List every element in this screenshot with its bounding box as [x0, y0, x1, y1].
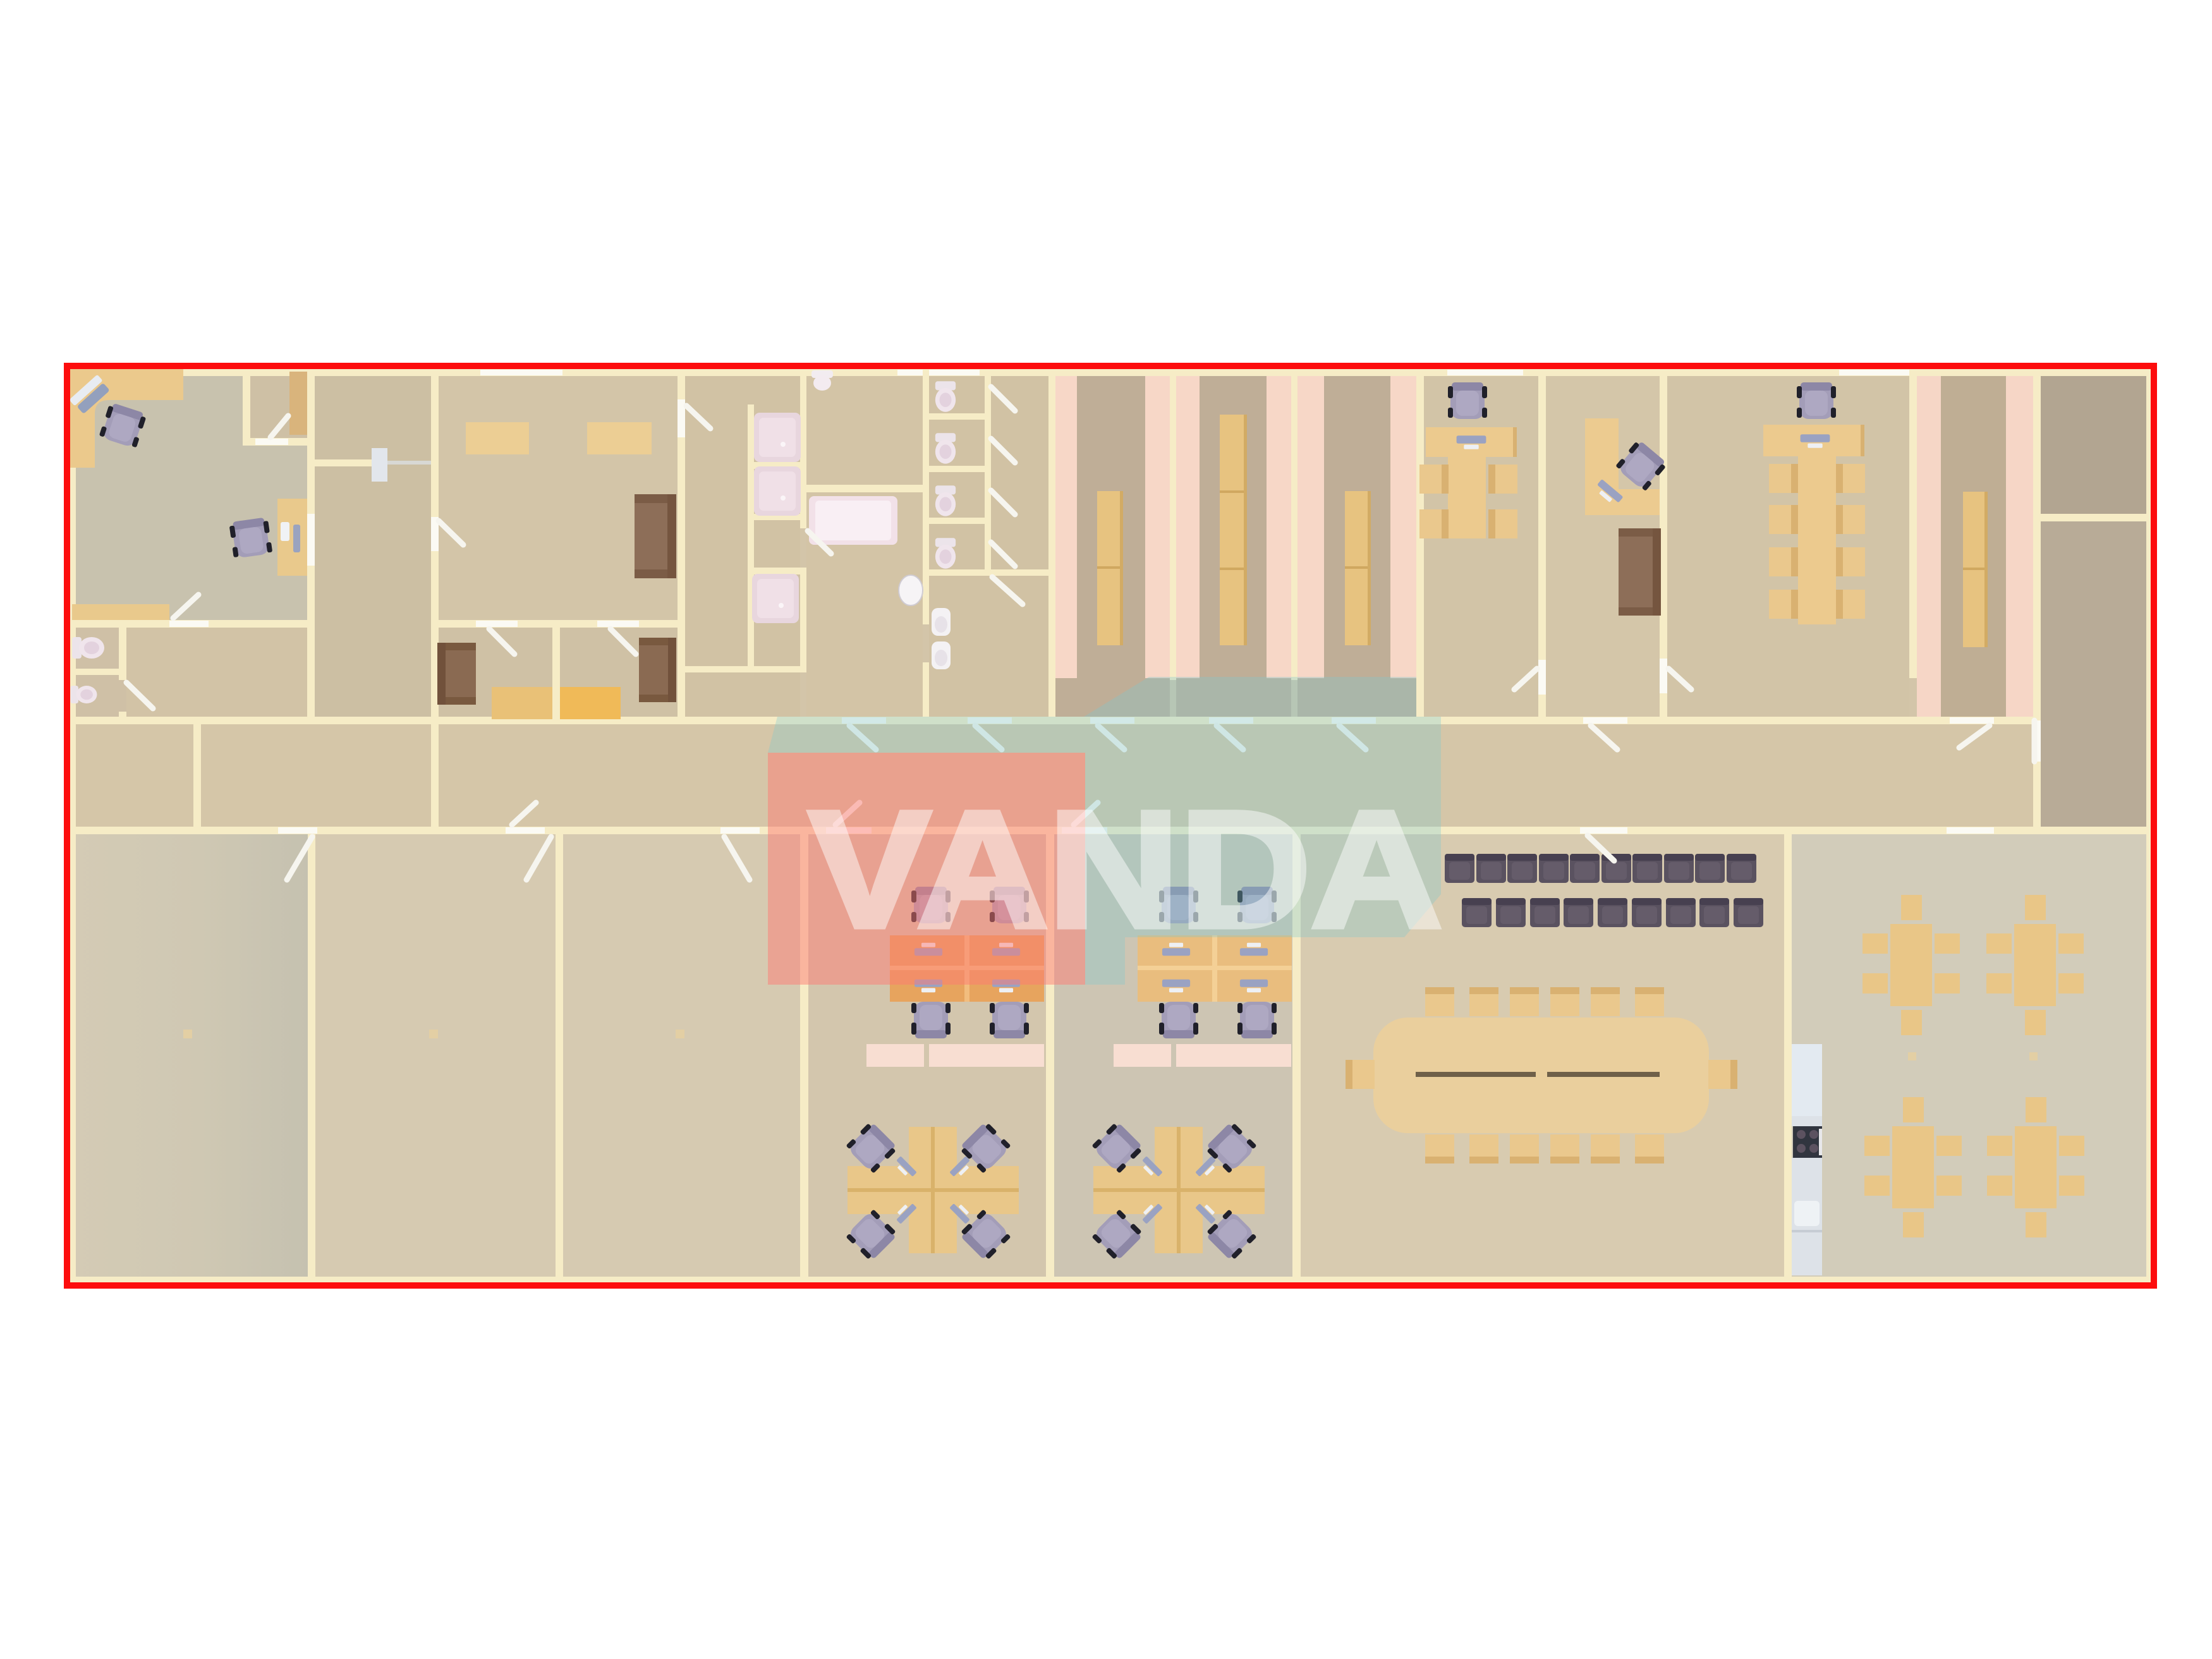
svg-text:VANDA: VANDA	[809, 777, 1442, 962]
